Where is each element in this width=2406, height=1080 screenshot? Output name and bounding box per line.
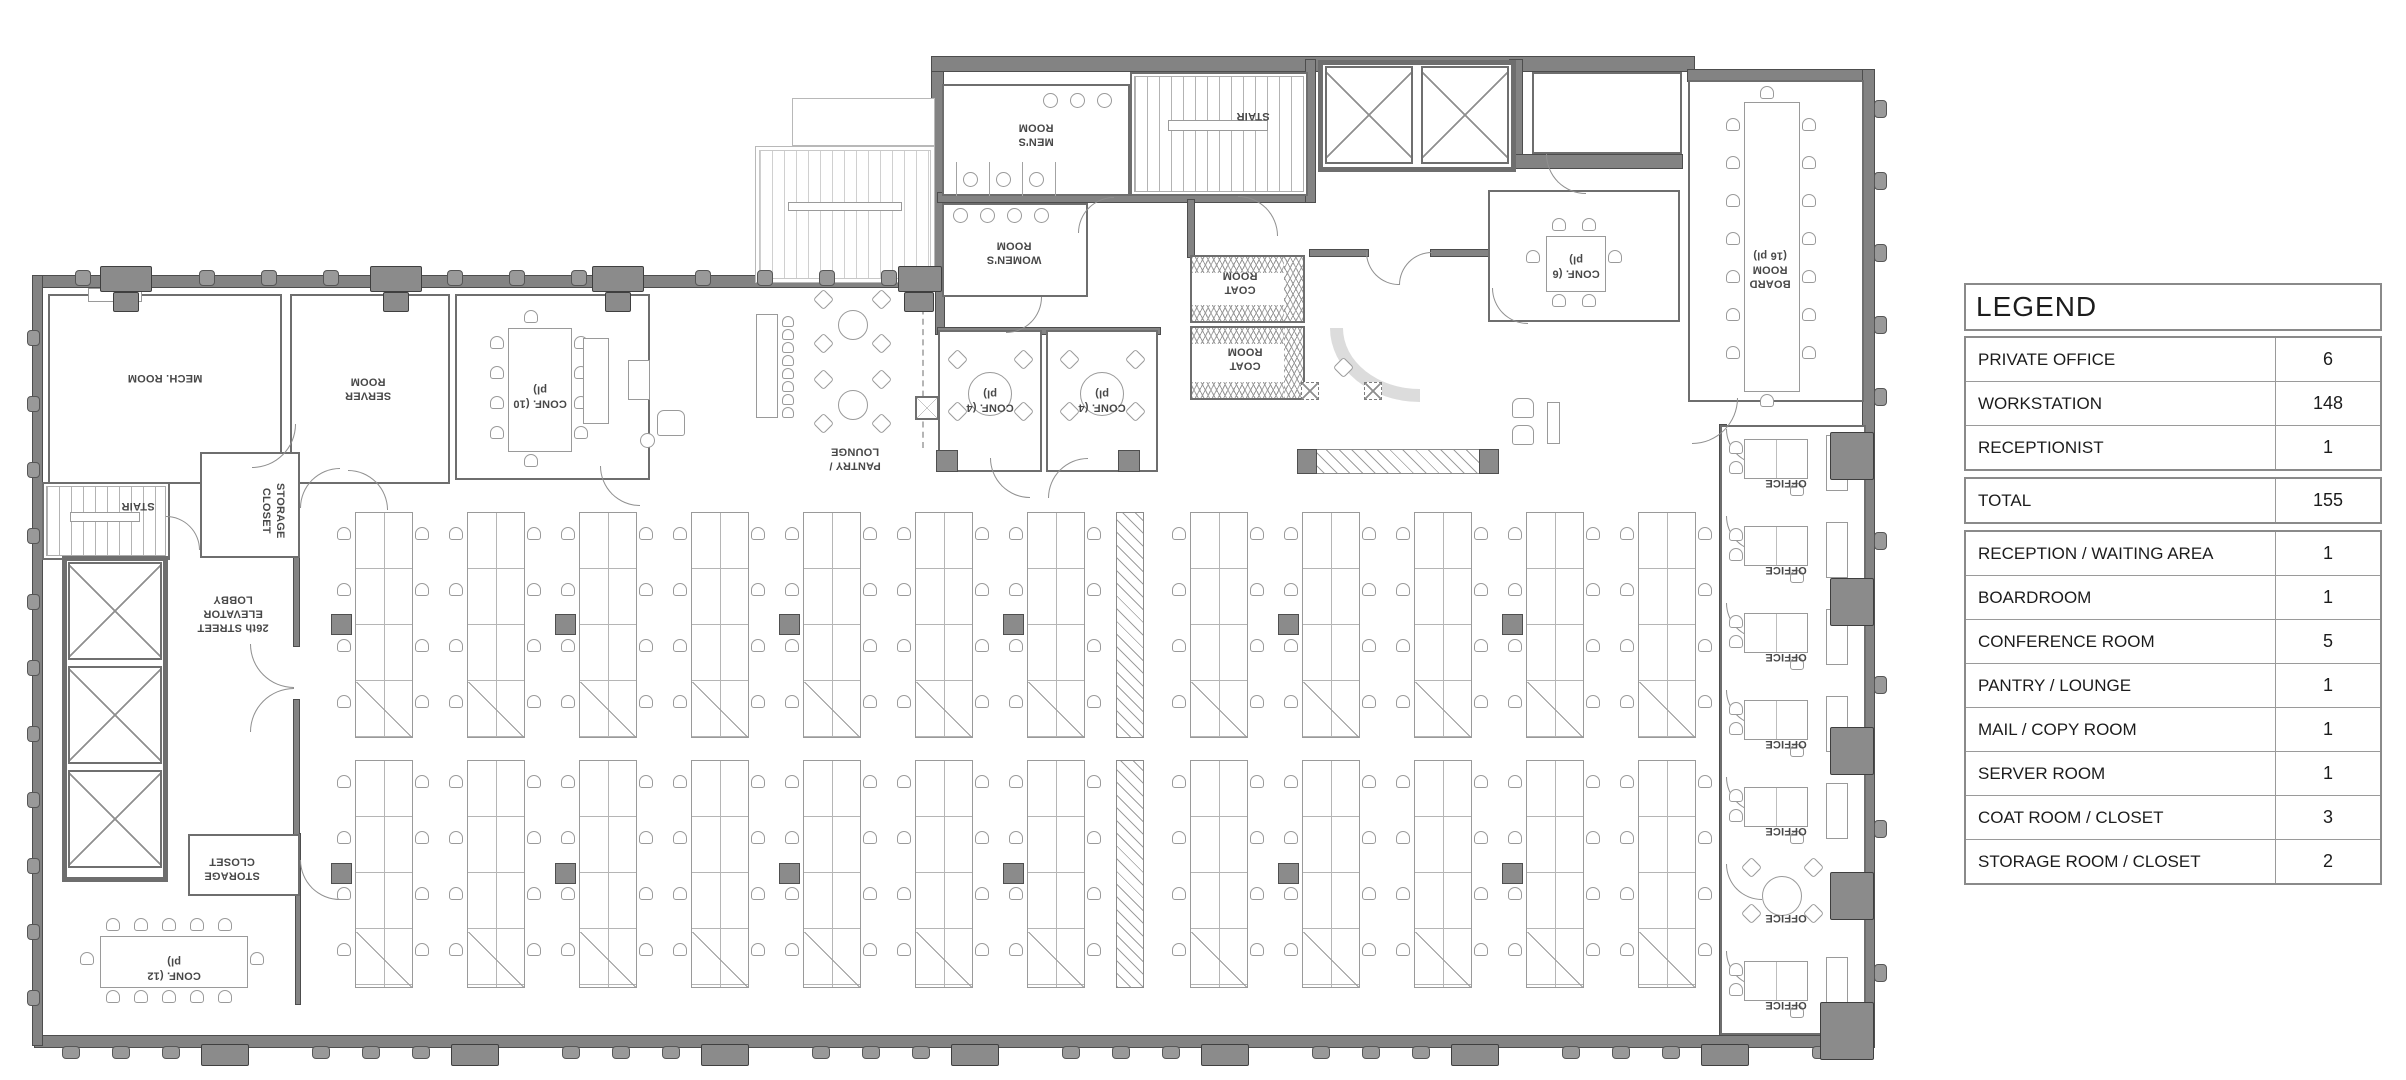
chair [673, 887, 687, 900]
legend-row-label: STORAGE ROOM / CLOSET [1966, 852, 2275, 872]
legend-row-value: 1 [2275, 752, 2380, 795]
chair [561, 583, 575, 596]
chair [1726, 118, 1740, 131]
chair [751, 831, 765, 844]
cluster-diagonal [356, 682, 412, 737]
chair [782, 329, 794, 340]
chair [1362, 695, 1376, 708]
chair [449, 943, 463, 956]
chair [1729, 635, 1743, 648]
door-arc [250, 688, 294, 732]
stall-divider [956, 162, 957, 196]
column-block [1830, 872, 1874, 920]
workstation-cluster [1190, 512, 1248, 738]
wall-segment [294, 556, 299, 646]
chair [490, 426, 504, 439]
chair [1009, 775, 1023, 788]
workstation-cluster [355, 760, 413, 988]
column-bump [1112, 1046, 1130, 1059]
chair [1009, 831, 1023, 844]
stair-rail [788, 202, 902, 211]
office-desk [1744, 526, 1808, 566]
workstation-cluster [355, 512, 413, 738]
stair-treads [1134, 76, 1304, 192]
chair [490, 396, 504, 409]
chair [337, 775, 351, 788]
workstation-cluster [1190, 760, 1248, 988]
office-desk [1744, 700, 1808, 740]
chair [1729, 461, 1743, 474]
legend-row: MAIL / COPY ROOM 1 [1966, 707, 2380, 751]
chair [337, 527, 351, 540]
legend-row-value: 6 [2275, 338, 2380, 381]
column-bump [323, 270, 339, 286]
toilet [1029, 172, 1044, 187]
chair [1009, 943, 1023, 956]
storage-cabinet [1278, 614, 1299, 635]
column [1118, 450, 1140, 472]
chair [1586, 695, 1600, 708]
exterior-structure [792, 98, 935, 146]
chair [1172, 831, 1186, 844]
chair [1608, 250, 1622, 263]
chair [863, 527, 877, 540]
column-bump [362, 1046, 380, 1059]
label-conf-4: CONF. (4 pl) [1075, 386, 1129, 414]
legend-row-value: 3 [2275, 796, 2380, 839]
chair [337, 887, 351, 900]
workstation-cluster [1638, 512, 1696, 738]
chair [751, 583, 765, 596]
chair [1620, 583, 1634, 596]
legend-row: TOTAL 155 [1966, 479, 2380, 522]
cluster-diagonal [468, 682, 524, 737]
column-block [1830, 578, 1874, 626]
chair [1474, 887, 1488, 900]
legend-group-rooms: RECEPTION / WAITING AREA 1 BOARDROOM 1 C… [1964, 530, 2382, 885]
cluster-diagonal [692, 932, 748, 987]
chair [415, 775, 429, 788]
cluster-diagonal [468, 932, 524, 987]
legend-row-value: 1 [2275, 576, 2380, 619]
workstation-cluster [579, 512, 637, 738]
chair [1250, 639, 1264, 652]
label-womens-room: WOMEN'S ROOM [978, 238, 1050, 266]
office-desk [1744, 787, 1808, 827]
cluster-diagonal [692, 682, 748, 737]
cluster-diagonal [1028, 682, 1084, 737]
workstation-cluster [1027, 760, 1085, 988]
elevator-shaft [1421, 66, 1509, 164]
column-bump [912, 1046, 930, 1059]
chair [1284, 775, 1298, 788]
bench-cap [1479, 449, 1499, 474]
chair [1362, 775, 1376, 788]
legend-row-value: 1 [2275, 532, 2380, 575]
chair [1698, 583, 1712, 596]
storage-cabinet [555, 614, 576, 635]
waiting-chair [1512, 425, 1534, 445]
chair [863, 775, 877, 788]
chair [527, 887, 541, 900]
chair [561, 527, 575, 540]
chair [1698, 775, 1712, 788]
legend-row: RECEPTION / WAITING AREA 1 [1966, 532, 2380, 575]
chair [1586, 583, 1600, 596]
chair [897, 583, 911, 596]
chair [1087, 775, 1101, 788]
legend-row: PRIVATE OFFICE 6 [1966, 338, 2380, 381]
column-bump [75, 270, 91, 286]
column-bump [662, 1046, 680, 1059]
storage-cabinet [331, 863, 352, 884]
cluster-diagonal [1303, 682, 1359, 737]
legend-row-label: MAIL / COPY ROOM [1966, 720, 2275, 740]
wall-segment [1516, 155, 1682, 168]
door-arc [250, 644, 294, 688]
chair [415, 695, 429, 708]
chair [1087, 695, 1101, 708]
chair [1362, 943, 1376, 956]
legend-row-value: 1 [2275, 708, 2380, 751]
chair [785, 695, 799, 708]
label-storage-closet: STORAGE CLOSET [258, 478, 286, 544]
chair [1474, 695, 1488, 708]
floor-plan: MECH. ROOMSERVER ROOMCONF. (10 pl)PANTRY… [0, 0, 1900, 1080]
chair [751, 639, 765, 652]
chair [1284, 527, 1298, 540]
column-block [1830, 727, 1874, 775]
room-service [1532, 72, 1682, 154]
legend-row: COAT ROOM / CLOSET 3 [1966, 795, 2380, 839]
chair [561, 943, 575, 956]
cluster-diagonal [1527, 682, 1583, 737]
chair [1729, 441, 1743, 454]
chair [897, 943, 911, 956]
chair [1474, 639, 1488, 652]
coat-rack [1192, 305, 1284, 321]
label-conf-12: CONF. (12 pl) [145, 954, 203, 982]
chair [1362, 583, 1376, 596]
chair [975, 639, 989, 652]
chair [1508, 527, 1522, 540]
chair [527, 695, 541, 708]
chair [639, 527, 653, 540]
column-bump [812, 1046, 830, 1059]
chair [813, 413, 834, 434]
label-mens-room: MEN'S ROOM [1005, 120, 1067, 148]
chair [785, 527, 799, 540]
legend-title-text: LEGEND [1976, 291, 2097, 323]
chair [813, 289, 834, 310]
office-desk [1744, 439, 1808, 479]
chair [1620, 943, 1634, 956]
chair [1396, 887, 1410, 900]
round-table [838, 390, 868, 420]
chair [673, 583, 687, 596]
workstation-cluster [915, 512, 973, 738]
chair [1250, 943, 1264, 956]
workstation-cluster [579, 760, 637, 988]
chair [1802, 346, 1816, 359]
label-board-room: BOARD ROOM (16 pl) [1743, 248, 1797, 289]
column-bump [1062, 1046, 1080, 1059]
workstation-cluster [467, 512, 525, 738]
chair [162, 918, 176, 931]
chair [1698, 831, 1712, 844]
chair [574, 426, 588, 439]
label-conf-10: CONF. (10 pl) [513, 382, 567, 410]
workstation-cluster [1027, 512, 1085, 738]
chair [527, 943, 541, 956]
chair [1620, 695, 1634, 708]
door-arc [990, 458, 1030, 498]
column-bump [27, 660, 40, 676]
cluster-diagonal [1639, 932, 1695, 987]
door-arc [166, 516, 200, 550]
label-pantry-lounge: PANTRY / LOUNGE [817, 444, 893, 472]
column-bump [112, 1046, 130, 1059]
chair [1508, 887, 1522, 900]
chair [782, 355, 794, 366]
column-block [100, 266, 152, 292]
chair [524, 454, 538, 467]
chair [813, 333, 834, 354]
chair [639, 695, 653, 708]
office-desk [1744, 613, 1808, 653]
cluster-diagonal [1191, 932, 1247, 987]
storage-cabinet [555, 863, 576, 884]
workstation-cluster [803, 760, 861, 988]
chair [527, 775, 541, 788]
elevator-shaft [68, 770, 162, 868]
column-bump [162, 1046, 180, 1059]
chair [1729, 722, 1743, 735]
column-bump [412, 1046, 430, 1059]
chair [863, 695, 877, 708]
label-office: OFFICE [1760, 997, 1812, 1011]
chair [1586, 943, 1600, 956]
column-bump [27, 924, 40, 940]
stair-rail [70, 512, 140, 522]
round-table [838, 310, 868, 340]
column-bump [695, 270, 711, 286]
legend-row-value: 2 [2275, 840, 2380, 883]
office-cabinet [1826, 783, 1848, 839]
workstation-cluster [1526, 760, 1584, 988]
stall-divider [1022, 162, 1023, 196]
chair [897, 831, 911, 844]
label-conf-6: CONF. (6 pl) [1552, 252, 1600, 280]
column-bump [562, 1046, 580, 1059]
chair [1250, 583, 1264, 596]
column-block [1830, 432, 1874, 480]
chair [871, 289, 892, 310]
office-desk [1744, 961, 1808, 1001]
workstation-cluster [803, 512, 861, 738]
column-block [1451, 1044, 1499, 1066]
column-bump [1874, 172, 1887, 190]
chair [1172, 775, 1186, 788]
chair [1284, 695, 1298, 708]
chair [415, 527, 429, 540]
cluster-diagonal [916, 932, 972, 987]
cluster-diagonal [1527, 932, 1583, 987]
boardroom-table [1744, 102, 1800, 392]
column-bump [571, 270, 587, 286]
legend-panel: LEGEND PRIVATE OFFICE 6 WORKSTATION 148 … [1964, 283, 2382, 891]
chair [1582, 218, 1596, 231]
chair [1726, 232, 1740, 245]
chair [449, 583, 463, 596]
chair [337, 639, 351, 652]
bench [1297, 449, 1499, 474]
column-bump [1874, 676, 1887, 694]
chair [1729, 528, 1743, 541]
chair [1087, 831, 1101, 844]
chair [1396, 583, 1410, 596]
chair [673, 775, 687, 788]
chair [639, 943, 653, 956]
label-office: OFFICE [1760, 649, 1812, 663]
workstation-cluster [1526, 512, 1584, 738]
chair [1508, 775, 1522, 788]
label-office: OFFICE [1760, 736, 1812, 750]
column-bump [1874, 388, 1887, 406]
chair [639, 775, 653, 788]
office-cabinet [1826, 522, 1848, 578]
label-mech-room: MECH. ROOM [105, 370, 225, 384]
column-block [1820, 1002, 1874, 1060]
legend-row-value: 155 [2275, 479, 2380, 522]
chair [449, 695, 463, 708]
chair [1087, 639, 1101, 652]
chair [1760, 86, 1774, 99]
storage-cabinet [1003, 614, 1024, 635]
column-bump [612, 1046, 630, 1059]
sofa [583, 338, 609, 424]
chair [1362, 887, 1376, 900]
chair [1396, 943, 1410, 956]
column-stem [605, 292, 631, 312]
floor-marker [1301, 382, 1319, 400]
chair [1284, 583, 1298, 596]
chair [337, 831, 351, 844]
chair [1009, 695, 1023, 708]
column-bump [27, 990, 40, 1006]
column-bump [27, 462, 40, 478]
chair [337, 583, 351, 596]
chair [1802, 308, 1816, 321]
column-bump [1874, 100, 1887, 118]
chair [1474, 583, 1488, 596]
chair [1698, 527, 1712, 540]
chair [449, 887, 463, 900]
door-arc [1238, 196, 1278, 236]
column-bump [62, 1046, 80, 1059]
legend-row-value: 5 [2275, 620, 2380, 663]
chair [1087, 943, 1101, 956]
chair [673, 943, 687, 956]
legend-row-label: WORKSTATION [1966, 394, 2275, 414]
chair [1508, 583, 1522, 596]
armchair [657, 410, 685, 436]
legend-row-label: CONFERENCE ROOM [1966, 632, 2275, 652]
chair [1802, 118, 1816, 131]
chair [897, 527, 911, 540]
cluster-diagonal [580, 932, 636, 987]
sink [953, 208, 968, 223]
workstation-cluster [1638, 760, 1696, 988]
column-bump [1312, 1046, 1330, 1059]
chair [1586, 887, 1600, 900]
chair [975, 583, 989, 596]
coat-rack [1284, 257, 1303, 321]
chair [1172, 695, 1186, 708]
workstation-cluster [915, 760, 973, 988]
chair [897, 775, 911, 788]
legend-row: SERVER ROOM 1 [1966, 751, 2380, 795]
chair [813, 369, 834, 390]
door-arc [600, 466, 640, 506]
column-bump [1874, 820, 1887, 838]
chair [751, 943, 765, 956]
storage-cabinet [1003, 863, 1024, 884]
stall-divider [1055, 162, 1056, 196]
chair [1284, 887, 1298, 900]
chair [1172, 583, 1186, 596]
chair [639, 887, 653, 900]
chair [449, 639, 463, 652]
chair [1508, 831, 1522, 844]
chair [1362, 527, 1376, 540]
sink [980, 208, 995, 223]
chair [871, 413, 892, 434]
workstation-cluster [467, 760, 525, 988]
chair [1620, 831, 1634, 844]
chair [863, 639, 877, 652]
chair [415, 639, 429, 652]
cluster-diagonal [356, 932, 412, 987]
cluster-diagonal [804, 682, 860, 737]
chair [527, 831, 541, 844]
chair [639, 831, 653, 844]
chair [1250, 831, 1264, 844]
chair [1009, 639, 1023, 652]
chair [1729, 963, 1743, 976]
column-bump [1874, 244, 1887, 262]
column-marker [915, 396, 939, 420]
chair [134, 918, 148, 931]
column-bump [447, 270, 463, 286]
chair [1760, 394, 1774, 407]
chair [1726, 346, 1740, 359]
column-bump [199, 270, 215, 286]
chair [863, 943, 877, 956]
column [936, 450, 958, 472]
chair [1087, 583, 1101, 596]
sink [1043, 93, 1058, 108]
column-block [701, 1044, 749, 1066]
chair [1396, 639, 1410, 652]
chair [449, 775, 463, 788]
chair [1582, 294, 1596, 307]
label-coat-room: COAT ROOM [1218, 344, 1272, 372]
door-arc [1546, 154, 1586, 194]
chair [1508, 639, 1522, 652]
chair [1586, 831, 1600, 844]
chair [785, 583, 799, 596]
